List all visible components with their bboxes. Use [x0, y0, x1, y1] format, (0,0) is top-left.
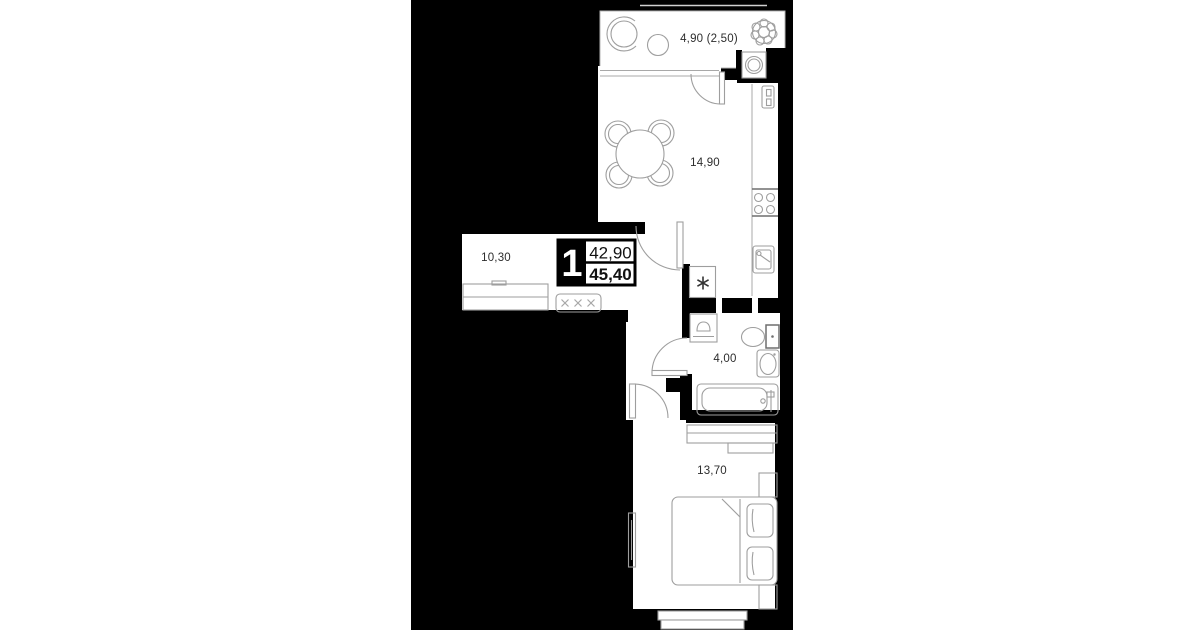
- bathroom-area-label: 4,00: [713, 353, 736, 365]
- vent-shaft-icon: [690, 267, 716, 298]
- balcony-area-label: 4,90 (2,50): [680, 33, 738, 45]
- area-total: 45,40: [589, 265, 632, 284]
- bedroom-area-label: 13,70: [697, 465, 727, 477]
- bed-icon: [672, 497, 777, 585]
- unit-area-badge: 1 42,90 45,40: [558, 240, 635, 285]
- kitchen-living-area-label: 14,90: [690, 157, 720, 169]
- rooms-count: 1: [561, 243, 582, 285]
- area-without-balcony: 42,90: [589, 244, 632, 263]
- floor-plan-page: 1 42,90 45,40: [0, 0, 1201, 630]
- dining-table-icon: [616, 130, 664, 178]
- window-icon: [658, 611, 747, 629]
- floor-plan-svg: 1 42,90 45,40: [0, 0, 1201, 630]
- boiler-icon: [742, 52, 766, 78]
- hallway-area-label: 10,30: [481, 252, 511, 264]
- washing-machine-icon: [690, 314, 717, 342]
